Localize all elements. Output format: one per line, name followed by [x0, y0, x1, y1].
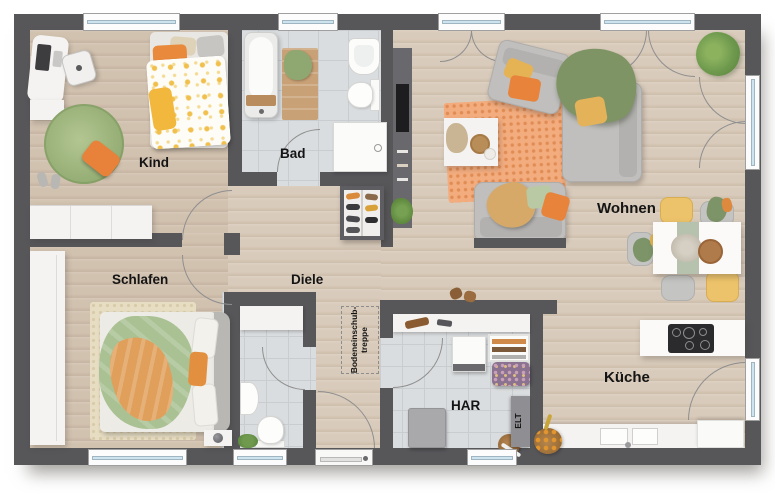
pillow	[196, 35, 225, 59]
serving-tray	[698, 239, 723, 264]
bath-drain	[259, 109, 264, 114]
towel	[284, 50, 312, 80]
wall-bad-south-left	[228, 172, 277, 186]
window-pane	[237, 456, 283, 460]
burner	[683, 327, 695, 339]
kitchen-sink	[600, 428, 628, 445]
entry-door	[315, 449, 373, 466]
shoe	[365, 193, 379, 200]
wall-wc-east-bottom	[303, 390, 316, 448]
wall-wc-east-top	[303, 292, 316, 347]
window	[600, 13, 695, 31]
storage-shelf	[488, 334, 530, 362]
washing-machine	[408, 408, 446, 448]
room-label-schlafen: Schlafen	[112, 272, 168, 287]
wall-kind-bad	[228, 30, 242, 186]
bathtub	[244, 32, 278, 118]
tray	[484, 148, 496, 160]
wall-har-kueche	[530, 300, 543, 448]
window-pane	[87, 20, 176, 24]
shelf-contents	[492, 355, 526, 359]
chair-post	[75, 64, 82, 71]
shoe-rack	[340, 186, 384, 240]
burner	[685, 341, 694, 350]
dining-chair-yellow	[660, 197, 693, 224]
tv	[396, 84, 409, 132]
tv-panel	[393, 48, 412, 228]
nightstand	[204, 430, 232, 446]
wall-har-west-top	[380, 314, 393, 338]
shelf-contents	[492, 347, 526, 352]
corner-plant	[696, 32, 740, 76]
shoe	[346, 215, 360, 222]
burner	[699, 328, 707, 336]
coffee-table	[444, 118, 498, 166]
kitchen-island	[640, 320, 745, 356]
entry-door-leaf	[320, 457, 362, 462]
window	[88, 449, 187, 466]
bath-caddy	[246, 95, 276, 106]
flower-basket	[534, 428, 562, 454]
corner-sink	[240, 382, 259, 415]
shoe	[365, 217, 378, 223]
room-label-diele: Diele	[291, 272, 323, 287]
window	[438, 13, 505, 31]
shelf-contents	[492, 339, 526, 344]
water-heater-base	[453, 364, 485, 371]
shelf-books	[397, 178, 408, 181]
shower	[333, 122, 387, 172]
faucet	[625, 442, 631, 448]
window-pane	[92, 456, 183, 460]
sofa-base	[474, 238, 566, 248]
room-label-elt: ELT	[513, 401, 527, 441]
dining-chair-gray	[661, 275, 695, 301]
wardrobe-tall	[30, 251, 65, 445]
cooktop	[668, 324, 714, 353]
wardrobe	[30, 205, 152, 239]
wc-toilet	[257, 416, 284, 444]
room-label-kueche: Küche	[604, 369, 650, 386]
window-pane	[751, 362, 755, 417]
window-pane	[604, 20, 691, 24]
burner	[700, 340, 710, 350]
shoe-rack-divider	[361, 190, 363, 236]
wardrobe-door-line	[56, 255, 57, 441]
window	[83, 13, 180, 31]
toilet	[347, 82, 373, 108]
room-label-har: HAR	[451, 398, 480, 413]
workbench	[393, 314, 530, 332]
bathtub-basin	[249, 37, 273, 99]
shoe	[346, 227, 360, 233]
wc-plant	[238, 434, 258, 448]
monitor	[35, 44, 52, 71]
bathroom-sink	[348, 38, 380, 75]
vase	[213, 433, 223, 443]
window-pane	[282, 20, 334, 24]
floor-plan: Bodeneinschub- treppe ELT	[0, 0, 775, 493]
wall-har-west-bottom	[380, 388, 393, 448]
yellow-pillow	[574, 96, 608, 128]
tool	[404, 317, 429, 330]
wc-shelf	[240, 306, 303, 330]
plant	[391, 198, 413, 224]
orange-pillow	[188, 351, 208, 386]
water-heater	[452, 336, 486, 372]
wardrobe-divider	[111, 206, 112, 239]
room-label-kind: Kind	[139, 155, 169, 170]
dried-plant	[446, 123, 468, 153]
pillow	[191, 383, 219, 427]
dining-table	[653, 222, 741, 274]
shelf-books	[397, 164, 408, 167]
kitchen-sink	[632, 428, 658, 445]
dining-chair-yellow	[706, 271, 739, 302]
kitchen-counter	[543, 424, 703, 448]
kitchen-door	[745, 358, 760, 421]
window	[278, 13, 338, 31]
window	[233, 449, 287, 466]
burner	[672, 328, 681, 337]
shower-drain	[374, 144, 382, 152]
room-label-wohnen: Wohnen	[597, 200, 656, 217]
attic-stairs-label: Bodeneinschub- treppe	[350, 305, 370, 375]
wardrobe-divider	[70, 206, 71, 239]
window-pane	[751, 79, 755, 166]
window-pane	[471, 456, 513, 460]
laundry-basket	[492, 362, 530, 386]
sink-basin	[354, 45, 374, 67]
kitchen-cabinet	[697, 420, 744, 448]
door-handle	[363, 456, 368, 461]
tool	[437, 319, 453, 327]
window	[467, 449, 517, 466]
shoe	[346, 204, 360, 210]
attic-stairs-outline: Bodeneinschub- treppe	[341, 306, 379, 374]
window-pane	[442, 20, 501, 24]
shelf-books	[397, 150, 408, 153]
french-door	[745, 75, 760, 170]
room-label-bad: Bad	[280, 146, 306, 161]
